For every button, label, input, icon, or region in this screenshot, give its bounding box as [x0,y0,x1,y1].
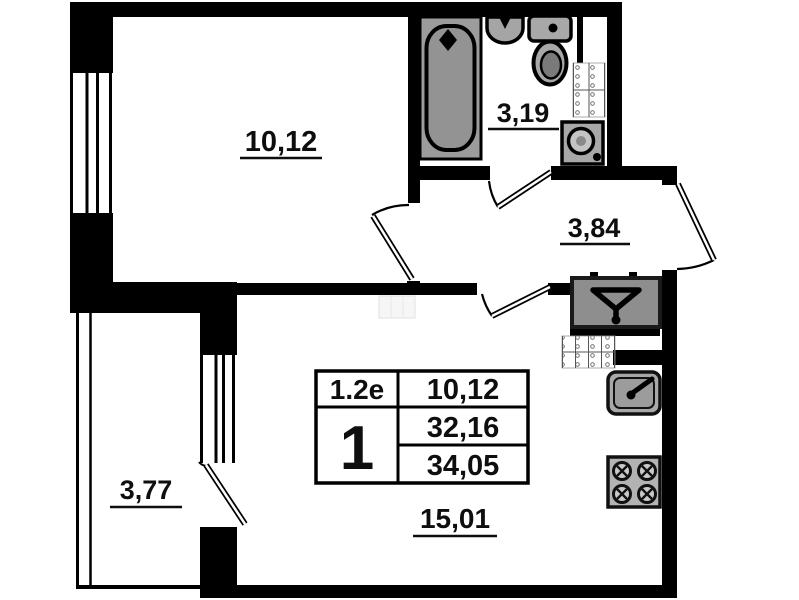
kitchen-shaft-hatch [562,336,615,368]
faint-duct-mark [379,296,415,318]
kitchen-living-area-label: 15,01 [420,503,490,534]
bathroom-shaft-hatch [573,63,605,117]
kitchen-sink-icon [608,372,660,414]
balcony-area-label: 3,77 [120,475,173,505]
bathroom-door [489,172,551,207]
unit-apartment-area: 32,16 [427,412,500,444]
floor-plan-drawing: 10,12 3,19 3,84 3,77 15,01 1.2e 1 10,12 … [0,0,799,600]
wall-right-upper [662,166,677,185]
living-room-door [482,287,550,316]
vent-hood-box [572,278,660,327]
hallway-area-label: 3,84 [568,213,621,243]
balcony-outline [76,313,202,588]
toilet-icon [529,16,571,85]
wall-bathroom-right [607,2,622,180]
wall-hallway-bottom-stub [548,283,572,295]
wall-right-lower [662,270,677,598]
unit-total-area: 34,05 [427,450,500,482]
stove-icon [608,457,660,507]
bedroom-door [372,205,412,279]
bedroom-area-label: 10,12 [245,126,318,158]
unit-living-area: 10,12 [427,374,500,406]
wall-shaft-divider [577,17,583,63]
unit-type-code: 1.2e [330,374,385,405]
balcony-door [199,462,245,524]
bedroom-window [72,73,111,213]
bedroom-door-arc [372,205,409,215]
wall-bottom [200,585,677,598]
wall-hallway-bottom [237,283,477,295]
unit-rooms-count: 1 [340,414,374,483]
washbasin-icon [487,17,523,43]
entrance-door-arc [677,260,714,269]
wall-livingroom-left-top [200,313,237,355]
wall-livingroom-left-bottom [200,527,237,585]
bathroom-area-label: 3,19 [497,98,550,128]
floor-plan: 10,12 3,19 3,84 3,77 15,01 1.2e 1 10,12 … [0,0,799,600]
bathroom-door-arc [489,181,498,207]
wall-kitchen-shaft-side [613,350,662,365]
wall-left-lower [70,213,113,313]
wall-bedroom-bottom [113,282,237,313]
bathtub-icon [420,17,481,159]
entrance-door [677,184,714,269]
living-room-door-arc [482,294,492,316]
wall-top-left-corner [70,2,113,73]
washing-machine-icon [562,122,603,164]
unit-info-card: 1.2e 1 10,12 32,16 34,05 [316,371,528,483]
balcony-window [202,355,234,463]
wall-bathroom-bottom-left [408,166,490,180]
